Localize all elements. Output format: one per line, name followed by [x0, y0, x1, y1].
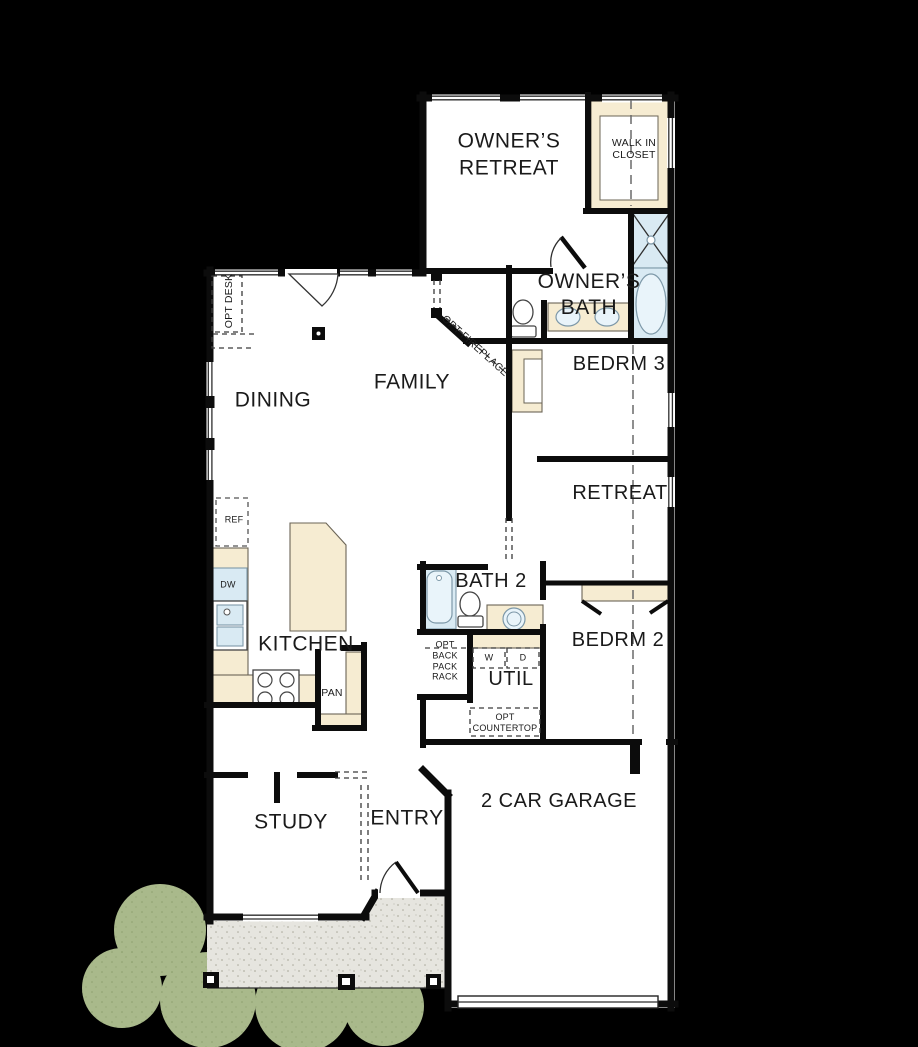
owners-toilet [513, 300, 533, 324]
annotation-opt-desk: OPT DESK [223, 274, 235, 329]
backpack-line2: BACK [432, 650, 458, 661]
owners-retreat-line1: OWNER’S [458, 128, 561, 155]
bedrm2-closet-shelf [582, 585, 668, 601]
room-label-family: FAMILY [374, 368, 450, 395]
room-label-retreat: RETREAT [572, 480, 667, 506]
annotation-washer: W [485, 653, 494, 664]
room-label-owners-retreat: OWNER’S RETREAT [458, 128, 561, 183]
room-label-walk-in-closet: WALK IN CLOSET [612, 137, 656, 161]
annotation-backpack-rack: OPT BACK PACK RACK [432, 639, 458, 682]
room-label-owners-bath: OWNER’S BATH [538, 269, 641, 322]
backpack-line1: OPT [432, 639, 458, 650]
walk-in-closet-line2: CLOSET [612, 149, 656, 161]
shower-drain [647, 236, 655, 244]
walk-in-closet-line1: WALK IN [612, 137, 656, 149]
room-label-garage: 2 CAR GARAGE [481, 788, 637, 814]
owners-bath-line2: BATH [538, 295, 641, 321]
room-label-bath2: BATH 2 [455, 568, 527, 594]
room-label-kitchen: KITCHEN [258, 630, 354, 657]
opt-countertop-line1: OPT [473, 712, 538, 723]
owners-bath-line1: OWNER’S [538, 269, 641, 295]
bath2-sink [503, 608, 525, 630]
backpack-line4: RACK [432, 672, 458, 683]
backpack-line3: PACK [432, 661, 458, 672]
annotation-opt-countertop: OPT COUNTERTOP [473, 712, 538, 734]
util-counter [470, 633, 543, 648]
annotation-ref: REF [225, 515, 244, 526]
owners-retreat-line2: RETREAT [458, 155, 561, 182]
floor-plan-page: OWNER’S RETREAT WALK IN CLOSET OWNER’S B… [0, 0, 918, 1047]
room-label-dining: DINING [235, 386, 312, 413]
room-label-study: STUDY [254, 808, 328, 835]
kitchen-island [290, 523, 346, 631]
house-footprint [207, 95, 675, 1008]
room-label-util: UTIL [488, 666, 533, 692]
bath2-toilet [460, 592, 480, 616]
annotation-dryer: D [520, 653, 527, 664]
room-label-entry: ENTRY [370, 804, 443, 831]
annotation-dw: DW [220, 580, 235, 591]
opt-countertop-line2: COUNTERTOP [473, 723, 538, 734]
annotation-pan: PAN [321, 687, 342, 699]
room-label-bedrm3: BEDRM 3 [573, 351, 665, 377]
room-label-bedrm2: BEDRM 2 [572, 627, 664, 653]
